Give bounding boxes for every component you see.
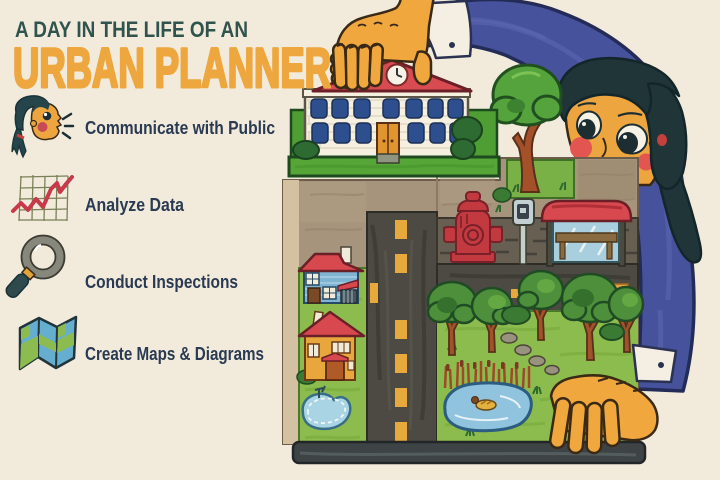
svg-text:Communicate with Public: Communicate with Public	[85, 117, 275, 138]
svg-text:Create Maps & Diagrams: Create Maps & Diagrams	[85, 343, 264, 364]
svg-text:Analyze Data: Analyze Data	[85, 194, 185, 215]
svg-text:URBAN PLANNER: URBAN PLANNER	[13, 36, 331, 99]
svg-text:Conduct Inspections: Conduct Inspections	[85, 271, 238, 292]
